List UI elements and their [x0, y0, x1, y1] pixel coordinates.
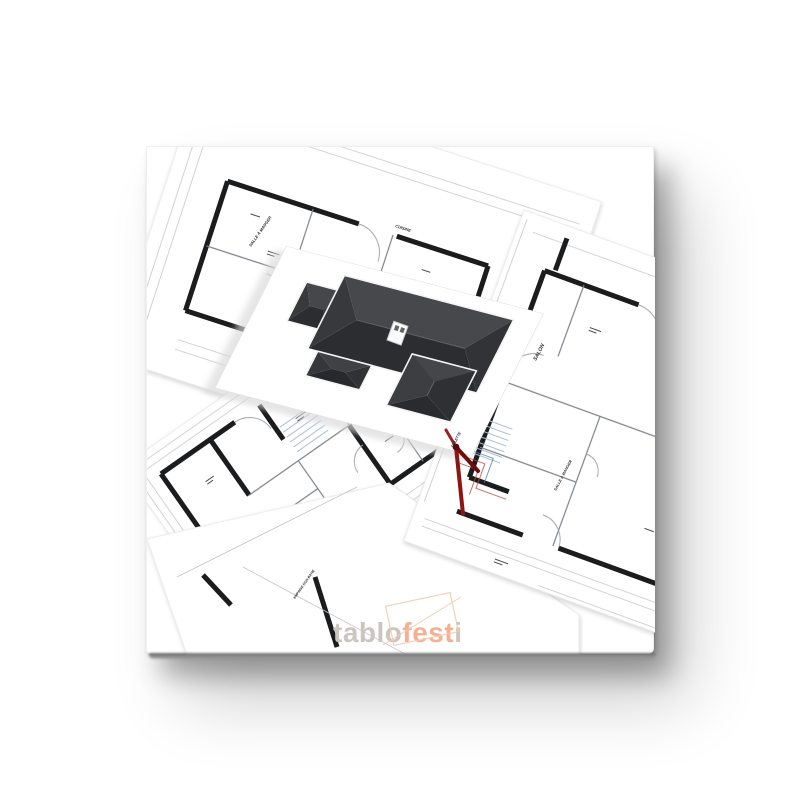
blueprint-artwork: SALLE À MANGER CUISINE SALON SALLE À MAN…: [147, 147, 655, 655]
watermark-sketch-icon: [375, 589, 471, 649]
canvas-print: SALLE À MANGER CUISINE SALON SALLE À MAN…: [146, 146, 654, 654]
watermark: tablofesti: [333, 619, 462, 647]
sketch-frame: [386, 593, 459, 646]
product-photo-background: SALLE À MANGER CUISINE SALON SALLE À MAN…: [0, 0, 800, 800]
